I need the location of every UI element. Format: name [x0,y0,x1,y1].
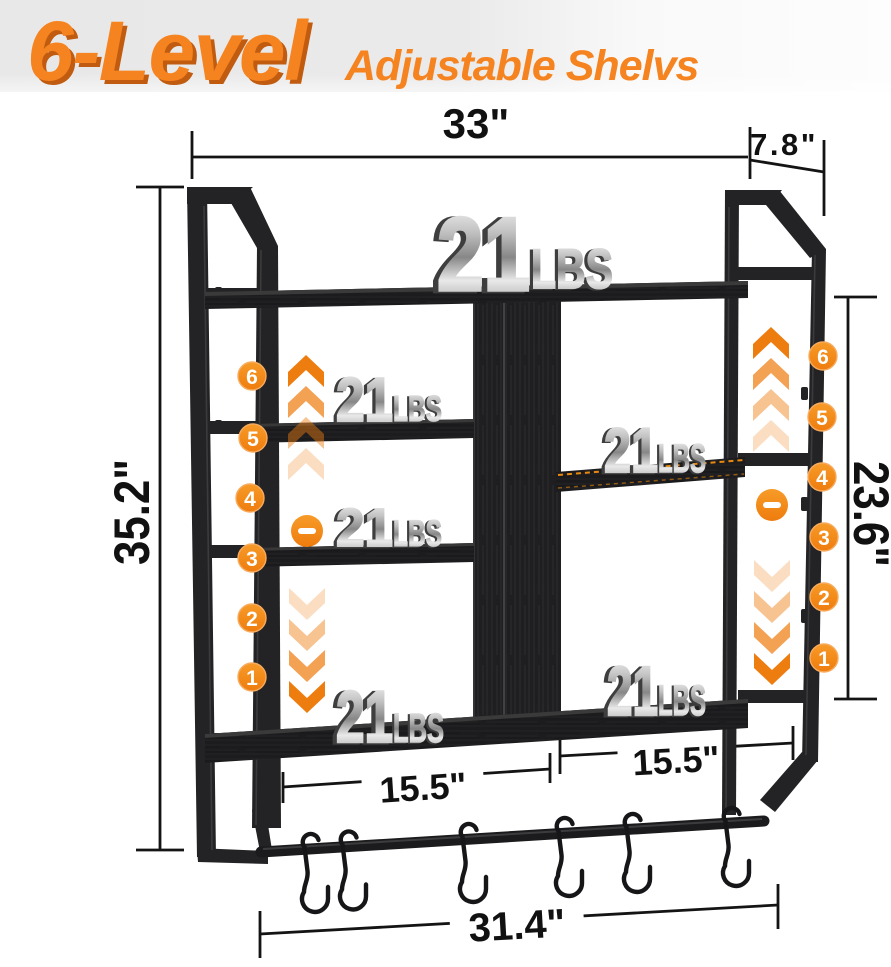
svg-text:21: 21 [336,677,393,758]
svg-text:21: 21 [336,498,393,558]
svg-text:23.6": 23.6" [843,461,891,567]
svg-text:LBS: LBS [658,437,706,481]
svg-text:LBS: LBS [658,677,706,725]
svg-text:15.5": 15.5" [631,738,720,784]
svg-text:33": 33" [443,100,510,147]
svg-text:1: 1 [246,667,258,690]
svg-text:35.2": 35.2" [104,459,160,565]
svg-text:21: 21 [336,366,393,435]
svg-text:Adjustable Shelvs: Adjustable Shelvs [344,42,698,90]
svg-text:4: 4 [816,467,828,490]
svg-text:6-Level: 6-Level [27,4,309,98]
svg-text:21: 21 [604,416,658,486]
svg-text:5: 5 [247,428,259,451]
svg-text:31.4": 31.4" [467,901,566,950]
svg-text:4: 4 [244,488,256,511]
svg-text:6: 6 [817,346,829,369]
svg-text:3: 3 [818,527,830,550]
svg-text:15.5": 15.5" [378,764,468,810]
svg-text:2: 2 [818,587,830,610]
svg-text:6: 6 [246,366,258,389]
svg-text:LBS: LBS [393,388,442,429]
svg-text:2: 2 [246,608,258,631]
svg-text:LBS: LBS [393,513,442,554]
svg-text:LBS: LBS [531,237,613,300]
svg-text:7.8": 7.8" [750,127,818,162]
svg-text:1: 1 [818,648,830,671]
svg-text:3: 3 [246,548,258,571]
svg-text:21: 21 [607,652,658,730]
svg-text:LBS: LBS [393,705,444,751]
svg-text:5: 5 [816,407,828,430]
svg-text:21: 21 [437,197,530,313]
